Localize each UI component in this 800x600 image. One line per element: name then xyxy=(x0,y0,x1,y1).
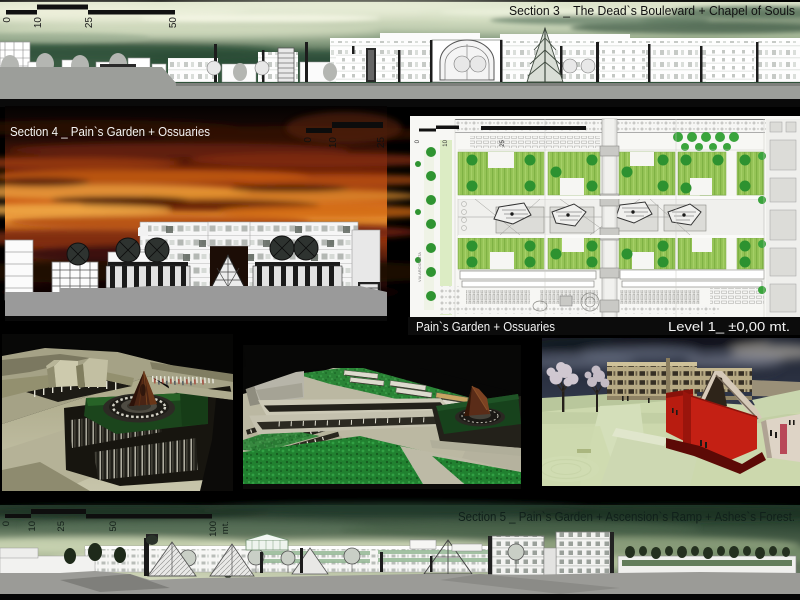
svg-text:Level 1_ ±0,00 mt.: Level 1_ ±0,00 mt. xyxy=(668,319,790,334)
svg-text:100: 100 xyxy=(208,521,219,537)
svg-text:0: 0 xyxy=(303,137,314,143)
svg-text:0: 0 xyxy=(1,521,12,526)
svg-text:0: 0 xyxy=(2,17,13,23)
svg-text:25: 25 xyxy=(376,137,387,149)
svg-text:10: 10 xyxy=(328,137,339,149)
svg-text:10: 10 xyxy=(33,17,44,29)
svg-text:25: 25 xyxy=(84,17,95,29)
svg-text:Section 5 _ Pain`s Garden + As: Section 5 _ Pain`s Garden + Ascension`s … xyxy=(458,509,795,524)
svg-text:Section 4 _ Pain`s Garden + Os: Section 4 _ Pain`s Garden + Ossuaries xyxy=(10,124,210,139)
svg-text:Section 3 _ The Dead`s Bouleva: Section 3 _ The Dead`s Boulevard + Chape… xyxy=(509,3,795,18)
svg-text:50: 50 xyxy=(108,521,119,532)
svg-text:25: 25 xyxy=(500,139,506,146)
svg-text:Pain`s Garden + Ossuaries: Pain`s Garden + Ossuaries xyxy=(416,319,555,334)
svg-text:25: 25 xyxy=(56,521,67,532)
svg-text:mt.: mt. xyxy=(220,521,231,534)
svg-text:10: 10 xyxy=(443,139,449,146)
svg-text:50: 50 xyxy=(168,17,179,29)
svg-text:10: 10 xyxy=(27,521,38,532)
svg-text:VIA ARCIGNATA: VIA ARCIGNATA xyxy=(417,252,422,282)
